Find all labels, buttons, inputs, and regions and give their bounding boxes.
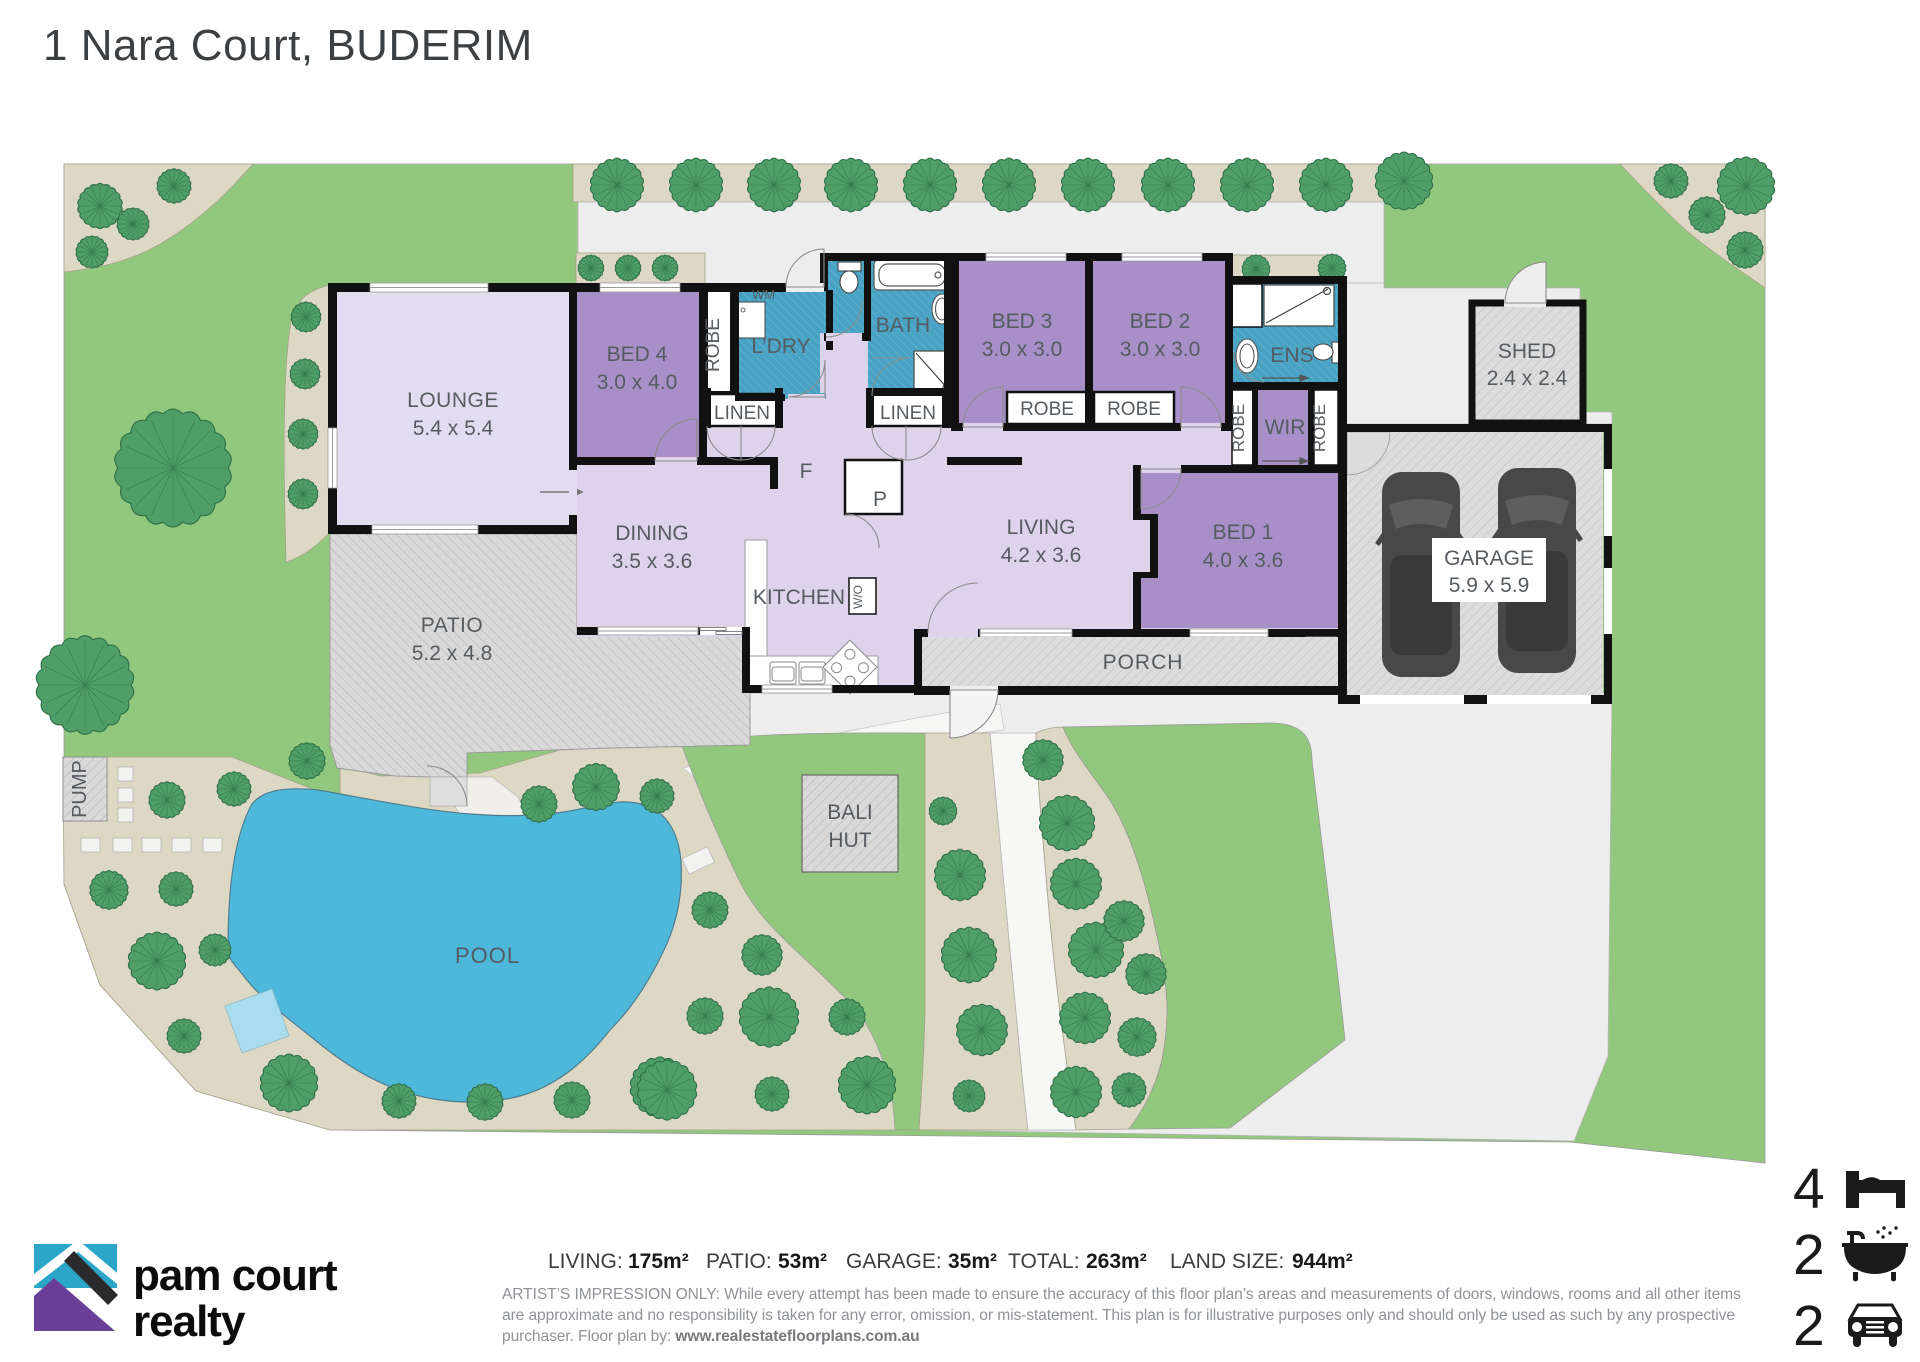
- svg-text:35m²: 35m²: [948, 1250, 997, 1273]
- svg-text:5.4 x 5.4: 5.4 x 5.4: [413, 417, 494, 440]
- svg-text:TOTAL:: TOTAL:: [1008, 1250, 1080, 1273]
- svg-text:W/O: W/O: [851, 585, 865, 609]
- svg-text:HUT: HUT: [828, 829, 871, 852]
- svg-text:175m²: 175m²: [628, 1250, 689, 1273]
- svg-text:4.2 x 3.6: 4.2 x 3.6: [1001, 544, 1082, 567]
- svg-text:3.5 x 3.6: 3.5 x 3.6: [612, 550, 693, 573]
- svg-text:realty: realty: [133, 1297, 246, 1346]
- svg-text:4.0 x 3.6: 4.0 x 3.6: [1203, 549, 1284, 572]
- svg-text:5.2 x 4.8: 5.2 x 4.8: [412, 642, 493, 665]
- svg-text:ROBE: ROBE: [1229, 404, 1248, 452]
- svg-text:4: 4: [1793, 1157, 1825, 1221]
- svg-text:purchaser. Floor plan by: www.: purchaser. Floor plan by: www.realestate…: [502, 1328, 920, 1345]
- svg-text:WM: WM: [752, 287, 775, 302]
- svg-text:3.0 x 3.0: 3.0 x 3.0: [1120, 338, 1201, 361]
- svg-text:944m²: 944m²: [1292, 1250, 1353, 1273]
- svg-text:GARAGE:: GARAGE:: [846, 1250, 942, 1273]
- svg-text:3.0 x 4.0: 3.0 x 4.0: [597, 371, 678, 394]
- svg-text:263m²: 263m²: [1086, 1250, 1147, 1273]
- svg-text:ENS: ENS: [1270, 344, 1313, 367]
- svg-text:PATIO:: PATIO:: [706, 1250, 772, 1273]
- svg-text:L’DRY: L’DRY: [751, 335, 810, 358]
- svg-text:SHED: SHED: [1498, 340, 1556, 363]
- svg-text:2: 2: [1793, 1223, 1825, 1287]
- svg-text:KITCHEN: KITCHEN: [753, 586, 845, 609]
- svg-text:ROBE: ROBE: [1310, 404, 1329, 452]
- svg-text:F: F: [800, 460, 813, 483]
- svg-text:ARTIST’S IMPRESSION ONLY: Whil: ARTIST’S IMPRESSION ONLY: While every at…: [502, 1286, 1741, 1303]
- svg-text:ROBE: ROBE: [703, 318, 724, 372]
- svg-text:BED 1: BED 1: [1213, 521, 1274, 544]
- svg-text:WIR: WIR: [1265, 416, 1306, 439]
- svg-text:LIVING:: LIVING:: [548, 1250, 623, 1273]
- svg-text:PATIO: PATIO: [421, 614, 483, 637]
- svg-text:3.0 x 3.0: 3.0 x 3.0: [982, 338, 1063, 361]
- svg-text:PUMP: PUMP: [69, 760, 91, 818]
- svg-text:DINING: DINING: [615, 522, 689, 545]
- svg-text:5.9 x 5.9: 5.9 x 5.9: [1449, 574, 1530, 597]
- svg-text:BATH: BATH: [876, 314, 930, 337]
- svg-text:ROBE: ROBE: [1020, 399, 1074, 420]
- svg-text:LINEN: LINEN: [714, 403, 770, 424]
- svg-text:ROBE: ROBE: [1107, 399, 1161, 420]
- svg-text:PORCH: PORCH: [1103, 651, 1184, 674]
- svg-text:LIVING: LIVING: [1007, 516, 1076, 539]
- svg-text:GARAGE: GARAGE: [1444, 547, 1534, 570]
- svg-text:LAND SIZE:: LAND SIZE:: [1170, 1250, 1284, 1273]
- svg-text:BED 2: BED 2: [1130, 310, 1191, 333]
- svg-text:LINEN: LINEN: [880, 403, 936, 424]
- svg-text:2: 2: [1793, 1294, 1825, 1357]
- svg-text:pam court: pam court: [133, 1251, 338, 1300]
- svg-text:53m²: 53m²: [778, 1250, 827, 1273]
- svg-text:BALI: BALI: [827, 801, 873, 824]
- svg-text:P: P: [873, 488, 887, 511]
- svg-text:2.4 x 2.4: 2.4 x 2.4: [1487, 367, 1568, 390]
- svg-text:BED 3: BED 3: [992, 310, 1053, 333]
- svg-text:LOUNGE: LOUNGE: [407, 389, 499, 412]
- svg-text:POOL: POOL: [455, 943, 520, 968]
- svg-text:BED 4: BED 4: [607, 343, 668, 366]
- svg-text:are approximate and no respons: are approximate and no responsibility is…: [502, 1307, 1735, 1324]
- svg-text:1 Nara Court, BUDERIM: 1 Nara Court, BUDERIM: [43, 21, 533, 70]
